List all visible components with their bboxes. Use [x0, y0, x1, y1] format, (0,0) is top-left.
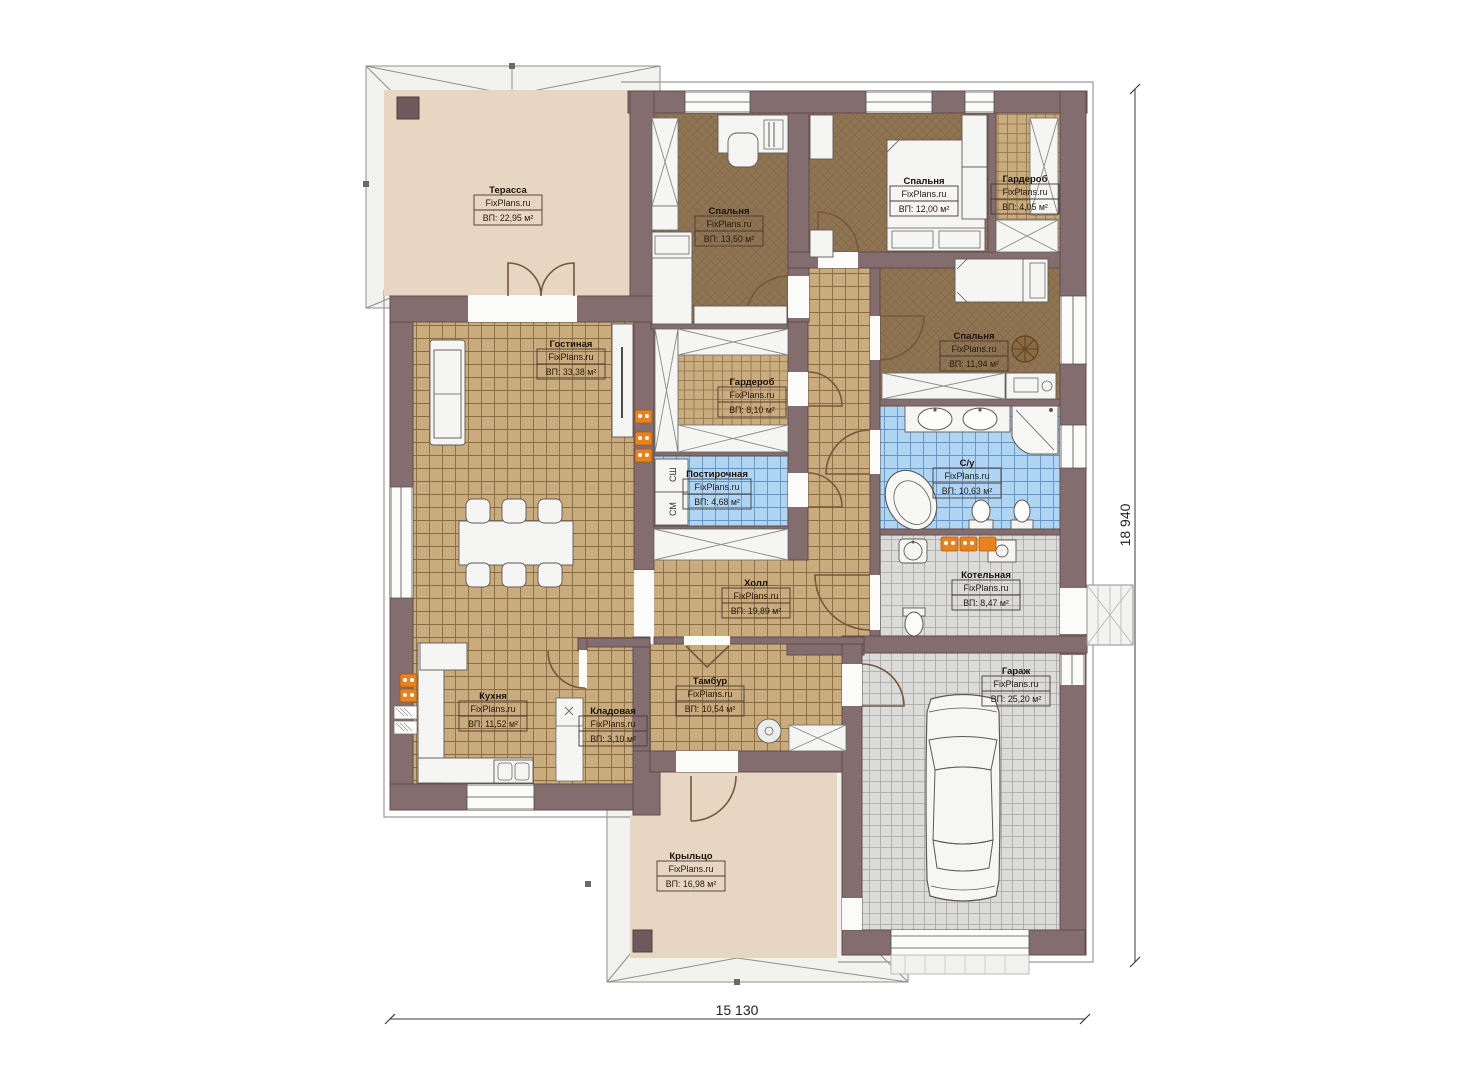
svg-text:FixPlans.ru: FixPlans.ru [687, 689, 732, 699]
svg-text:Спальня: Спальня [903, 176, 944, 187]
svg-text:Гостиная: Гостиная [550, 339, 593, 350]
svg-text:Спальня: Спальня [953, 331, 994, 342]
svg-text:ВП: 16,98 м²: ВП: 16,98 м² [666, 879, 717, 889]
svg-text:СМ: СМ [668, 502, 678, 516]
svg-text:FixPlans.ru: FixPlans.ru [963, 583, 1008, 593]
svg-text:ВП: 25,20 м²: ВП: 25,20 м² [991, 694, 1042, 704]
svg-text:18 940: 18 940 [1117, 503, 1133, 546]
svg-text:ВП: 8,10 м²: ВП: 8,10 м² [729, 405, 775, 415]
svg-text:С/у: С/у [960, 458, 976, 469]
svg-text:ВП: 12,00 м²: ВП: 12,00 м² [899, 204, 950, 214]
svg-text:Гардероб: Гардероб [730, 377, 775, 388]
svg-text:FixPlans.ru: FixPlans.ru [590, 719, 635, 729]
svg-text:FixPlans.ru: FixPlans.ru [733, 591, 778, 601]
svg-text:FixPlans.ru: FixPlans.ru [993, 679, 1038, 689]
svg-text:Постирочная: Постирочная [686, 469, 748, 480]
svg-text:ВП: 33,38 м²: ВП: 33,38 м² [546, 367, 597, 377]
svg-text:FixPlans.ru: FixPlans.ru [548, 352, 593, 362]
svg-text:ВП: 4,05 м²: ВП: 4,05 м² [1002, 202, 1048, 212]
svg-text:ВП: 11,94 м²: ВП: 11,94 м² [949, 359, 999, 369]
svg-text:15 130: 15 130 [716, 1002, 759, 1018]
svg-text:Крыльцо: Крыльцо [669, 851, 712, 862]
svg-text:Кладовая: Кладовая [590, 706, 636, 717]
svg-text:СШ: СШ [668, 467, 678, 482]
svg-text:FixPlans.ru: FixPlans.ru [485, 198, 530, 208]
svg-text:FixPlans.ru: FixPlans.ru [1002, 187, 1047, 197]
svg-text:FixPlans.ru: FixPlans.ru [951, 344, 996, 354]
svg-text:Терасса: Терасса [489, 185, 527, 196]
svg-text:ВП: 11,52 м²: ВП: 11,52 м² [468, 719, 518, 729]
svg-text:Котельная: Котельная [961, 570, 1011, 581]
svg-text:ВП: 3,10 м²: ВП: 3,10 м² [590, 734, 636, 744]
svg-text:Кухня: Кухня [479, 691, 507, 702]
svg-text:FixPlans.ru: FixPlans.ru [944, 471, 989, 481]
svg-text:ВП: 8,47 м²: ВП: 8,47 м² [963, 598, 1009, 608]
svg-text:Гардероб: Гардероб [1003, 174, 1048, 185]
svg-text:FixPlans.ru: FixPlans.ru [470, 704, 515, 714]
svg-text:Холл: Холл [744, 578, 768, 589]
svg-text:FixPlans.ru: FixPlans.ru [668, 864, 713, 874]
svg-text:ВП: 22,95 м²: ВП: 22,95 м² [483, 213, 534, 223]
svg-text:ВП: 19,89 м²: ВП: 19,89 м² [731, 606, 782, 616]
svg-text:ВП: 4,68 м²: ВП: 4,68 м² [694, 497, 740, 507]
svg-text:FixPlans.ru: FixPlans.ru [694, 482, 739, 492]
svg-text:FixPlans.ru: FixPlans.ru [729, 390, 774, 400]
svg-text:Спальня: Спальня [708, 206, 749, 217]
svg-text:ВП: 10,54 м²: ВП: 10,54 м² [685, 704, 736, 714]
svg-text:ВП: 10,63 м²: ВП: 10,63 м² [942, 486, 993, 496]
svg-text:Гараж: Гараж [1002, 666, 1031, 677]
svg-text:FixPlans.ru: FixPlans.ru [901, 189, 946, 199]
svg-text:ВП: 13,50 м²: ВП: 13,50 м² [704, 234, 755, 244]
svg-text:FixPlans.ru: FixPlans.ru [706, 219, 751, 229]
svg-text:Тамбур: Тамбур [693, 676, 728, 687]
